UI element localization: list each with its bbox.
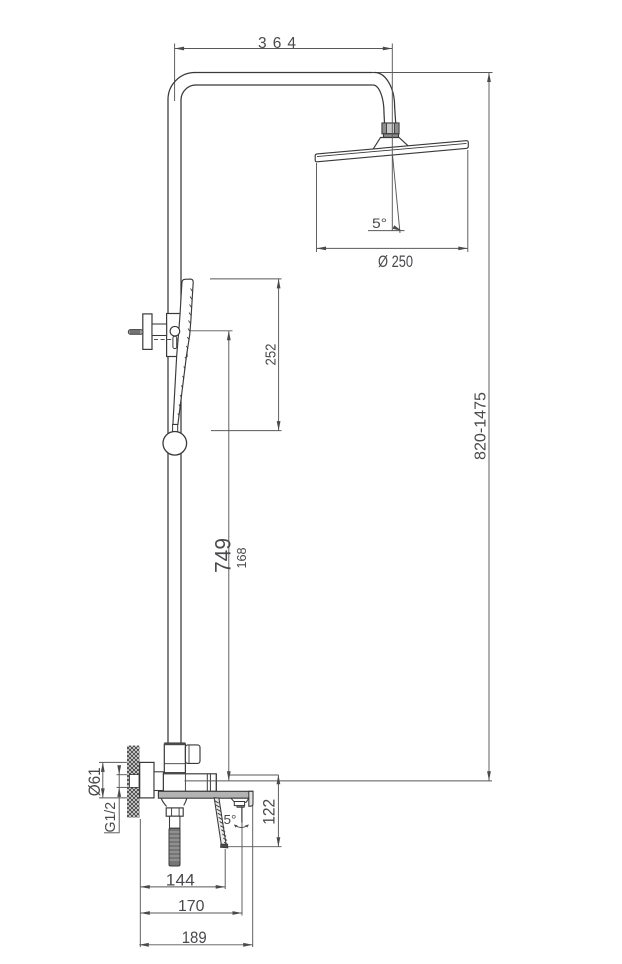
svg-text:Ø 250: Ø 250	[378, 252, 413, 271]
svg-text:5°: 5°	[372, 215, 387, 231]
svg-text:144: 144	[166, 870, 195, 889]
svg-text:170: 170	[178, 898, 205, 915]
svg-text:749: 749	[211, 538, 236, 573]
svg-text:168: 168	[235, 547, 249, 568]
svg-text:189: 189	[182, 928, 207, 947]
svg-text:122: 122	[260, 799, 279, 825]
svg-text:Ø61: Ø61	[85, 767, 104, 796]
svg-text:252: 252	[263, 344, 280, 366]
svg-text:G1/2: G1/2	[102, 802, 119, 833]
svg-text:364: 364	[258, 35, 296, 52]
svg-text:820-1475: 820-1475	[473, 392, 490, 460]
